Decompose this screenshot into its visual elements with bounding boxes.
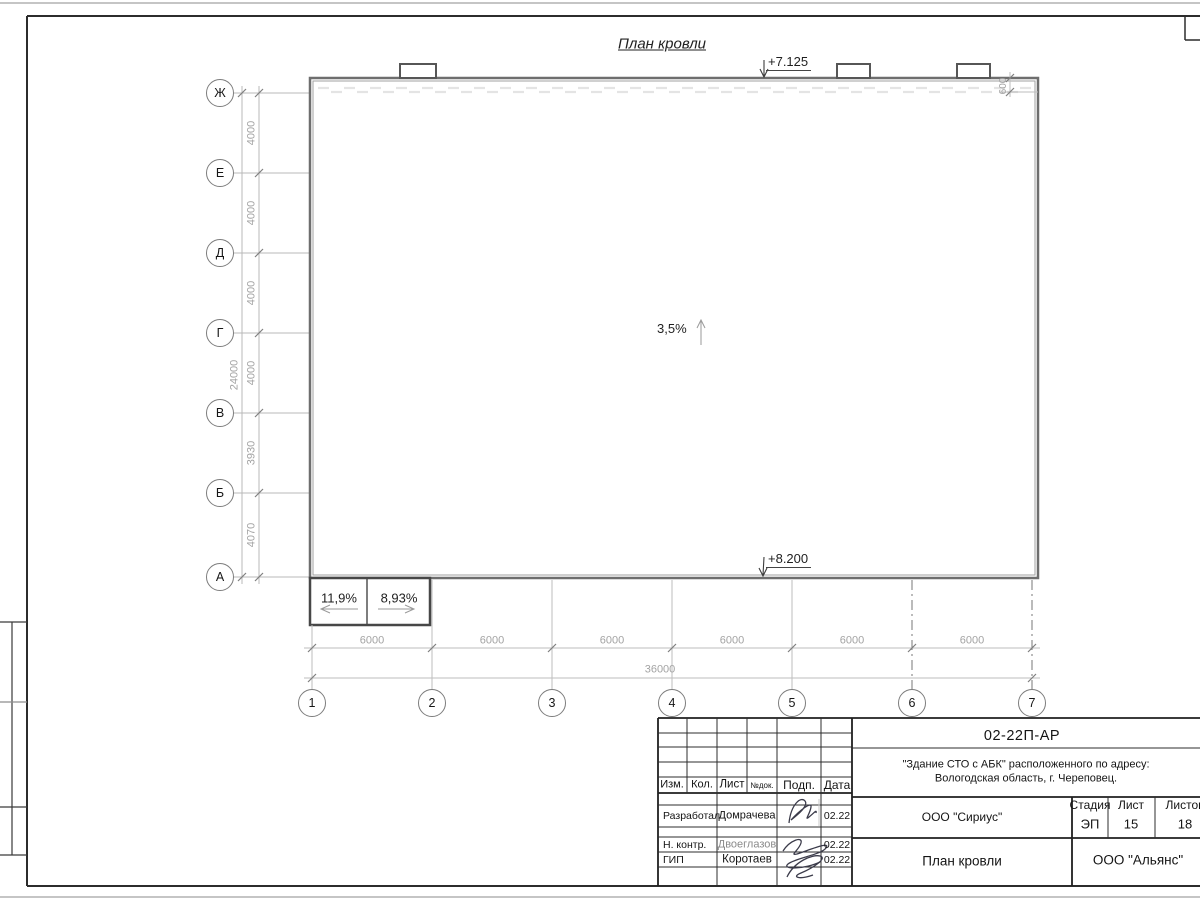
ramp-slope-left-label: 11,9% <box>321 592 357 605</box>
col-dim-1: 6000 <box>360 636 384 647</box>
row-axis-zh: Ж <box>206 79 234 107</box>
doc-number: 02-22П-АР <box>984 729 1060 744</box>
col-header-izm: Изм. <box>660 780 684 791</box>
row-dim-3: 4000 <box>247 281 258 305</box>
row-dim-5: 3930 <box>247 441 258 465</box>
row-developer-name: Домрачева <box>719 811 776 822</box>
col-dim-5: 6000 <box>840 636 864 647</box>
sheet-value: 15 <box>1124 818 1138 831</box>
stage-value: ЭП <box>1081 818 1100 831</box>
col-dim-2: 6000 <box>480 636 504 647</box>
row-developer-role: Разработал <box>663 811 720 822</box>
row-ncontrol-date: 02.22 <box>824 840 850 851</box>
col-dim-6: 6000 <box>960 636 984 647</box>
row-axis-e: Е <box>206 159 234 187</box>
row-ncontrol-name: Двоеглазов <box>718 840 776 851</box>
sheet-label: Лист <box>1118 799 1144 811</box>
col-axis-7: 7 <box>1018 689 1046 717</box>
col-header-kol: Кол. <box>691 780 713 791</box>
col-total-dim: 36000 <box>645 665 676 676</box>
elevation-bottom-label: +8.200 <box>766 552 811 568</box>
row-gip-name: Коротаев <box>722 854 772 866</box>
col-axis-5: 5 <box>778 689 806 717</box>
col-axis-3: 3 <box>538 689 566 717</box>
row-ncontrol-role: Н. контр. <box>663 840 706 851</box>
slope-main-label: 3,5% <box>657 322 687 335</box>
col-header-ndok: №док. <box>750 782 773 790</box>
row-gip-date: 02.22 <box>824 855 850 866</box>
row-gip-role: ГИП <box>663 855 684 866</box>
elevation-top-label: +7.125 <box>766 55 811 71</box>
drawing-sheet: План кровли +7.125 +8.200 3,5% 11,9% 8,9… <box>0 0 1200 900</box>
row-dim-6: 4070 <box>247 523 258 547</box>
sheets-label: Листов <box>1166 799 1200 811</box>
col-header-data: Дата <box>824 779 851 791</box>
drawing-title: План кровли <box>618 37 706 52</box>
col-axis-1: 1 <box>298 689 326 717</box>
project-address-line2: Вологодская область, г. Череповец. <box>935 774 1117 785</box>
text-layer: План кровли +7.125 +8.200 3,5% 11,9% 8,9… <box>0 0 1200 900</box>
row-axis-g: Г <box>206 319 234 347</box>
col-header-podp: Подп. <box>783 779 815 791</box>
row-axis-a: А <box>206 563 234 591</box>
col-dim-3: 6000 <box>600 636 624 647</box>
col-axis-6: 6 <box>898 689 926 717</box>
row-dim-4: 4000 <box>247 361 258 385</box>
row-axis-b: Б <box>206 479 234 507</box>
ramp-slope-right-label: 8,93% <box>381 592 418 605</box>
sheets-value: 18 <box>1178 818 1192 831</box>
col-dim-4: 6000 <box>720 636 744 647</box>
row-axis-d: Д <box>206 239 234 267</box>
stage-label: Стадия <box>1070 799 1111 811</box>
org-bottom: ООО "Альянс" <box>1093 853 1183 867</box>
col-axis-4: 4 <box>658 689 686 717</box>
row-dim-1: 4000 <box>247 121 258 145</box>
project-address-line1: "Здание СТО с АБК" расположенного по адр… <box>902 760 1149 771</box>
row-dim-2: 4000 <box>247 201 258 225</box>
row-axis-v: В <box>206 399 234 427</box>
org-middle: ООО "Сириус" <box>922 811 1002 823</box>
sheet-title: План кровли <box>922 854 1002 868</box>
row-developer-date: 02.22 <box>824 811 850 822</box>
col-axis-2: 2 <box>418 689 446 717</box>
col-header-list: Лист <box>720 779 745 791</box>
row-total-dim: 24000 <box>230 360 241 391</box>
parapet-dim-label: 600 <box>999 78 1009 95</box>
